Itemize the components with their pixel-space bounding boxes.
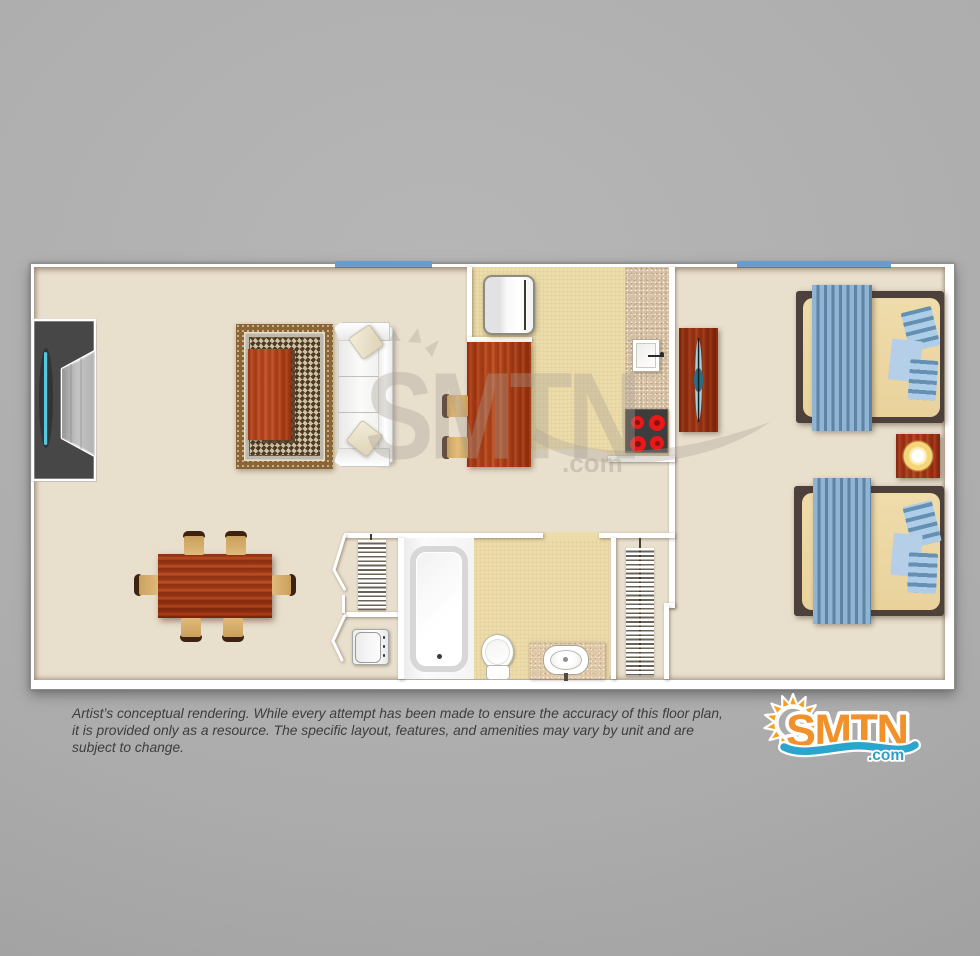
svg-text:.com: .com	[868, 747, 904, 764]
